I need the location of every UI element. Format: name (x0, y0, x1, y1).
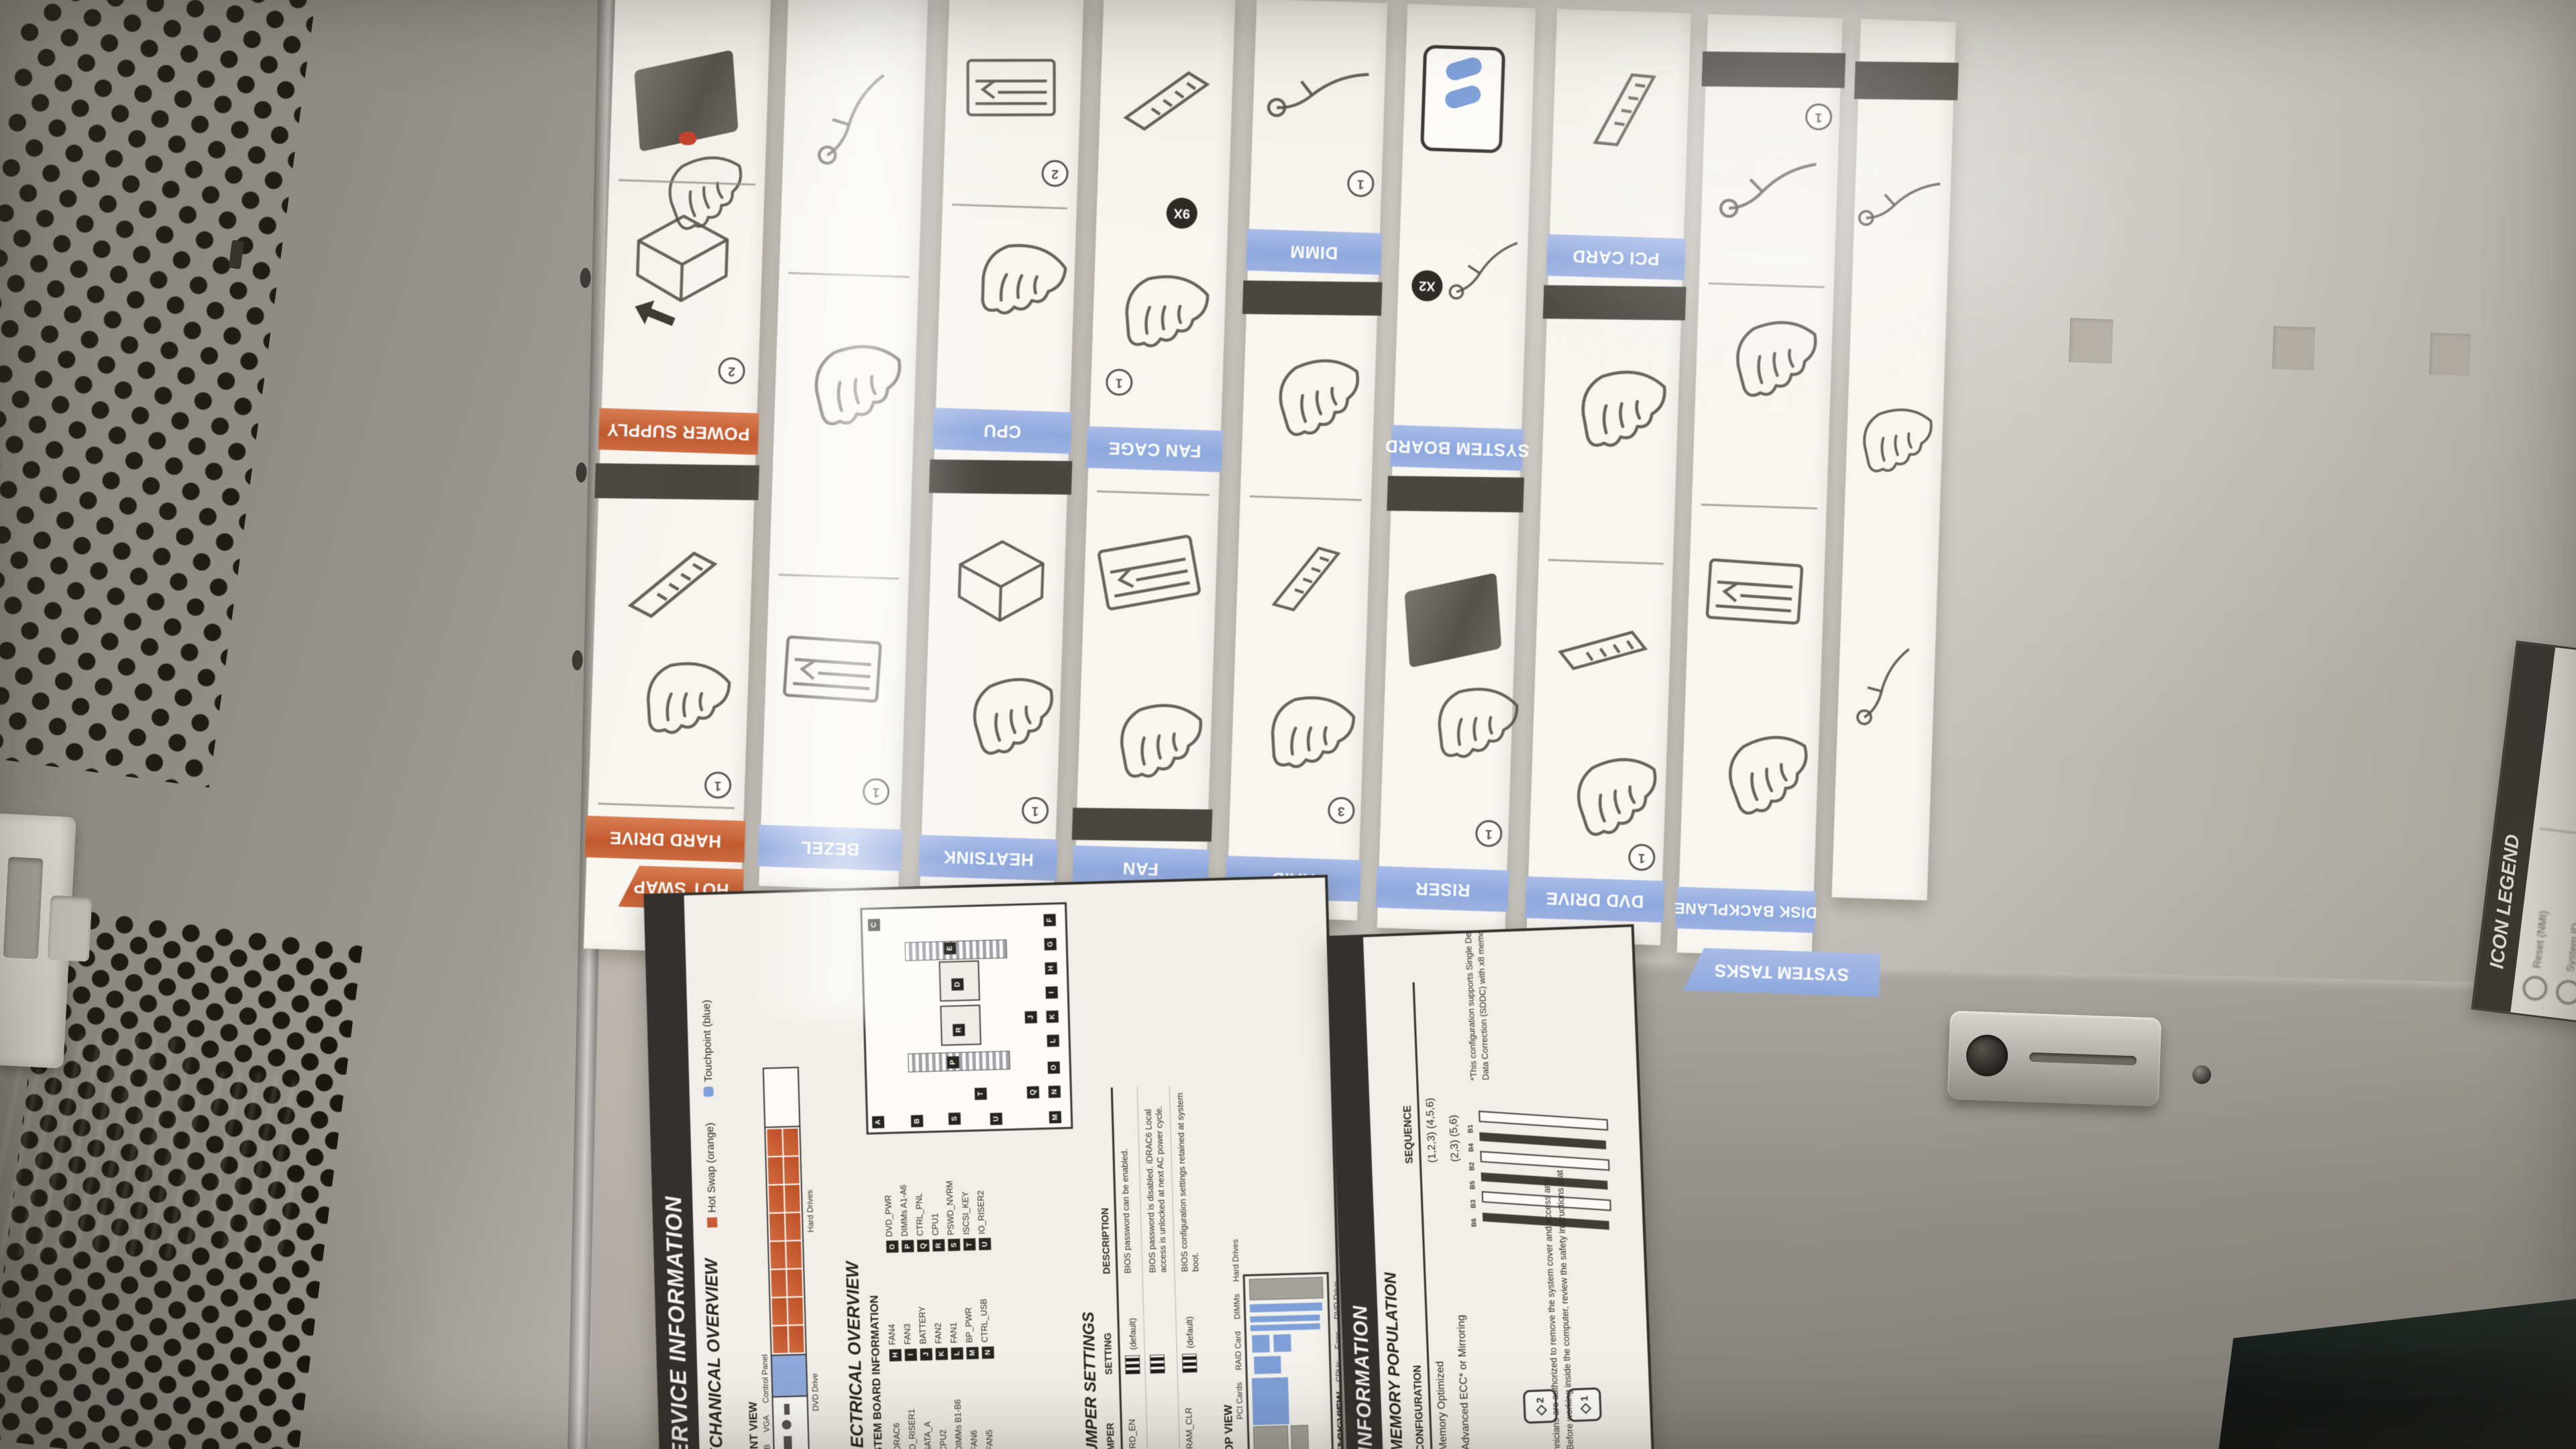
legend-key-chip: O (886, 1240, 898, 1252)
legend-key-chip: N (981, 1346, 994, 1358)
task-strip-right (1832, 19, 1956, 900)
task-strip-bezel: 1 BEZEL (759, 0, 928, 890)
jumper-setting-label: (default) (1128, 1318, 1138, 1350)
repeat-count: X2 (1419, 278, 1436, 294)
repeat-count-badge: 9X (1166, 197, 1197, 229)
electrical-overview-block: ELECTRICAL OVERVIEW SYSTEM BOARD INFORMA… (832, 894, 1084, 1449)
task-strip-fan: 9X 1 FAN CAGE FAN (1073, 0, 1235, 910)
repeat-count: 9X (1173, 205, 1190, 221)
orange-key-icon (707, 1217, 717, 1227)
step-number-circle: 3 (1328, 797, 1355, 824)
cpu-label-band: CPU (932, 408, 1072, 454)
drive-cell (786, 1213, 801, 1240)
board-letter: G (1044, 938, 1057, 950)
board-legend-item: DCPU2 (936, 1369, 953, 1449)
latch-screw-hole (1966, 1034, 2008, 1077)
board-letter: P (947, 1056, 959, 1068)
drive-cell (767, 1129, 782, 1157)
hand-illustration (627, 645, 739, 757)
legend-label: IO_RISER1 (907, 1409, 918, 1449)
power-supply-label-band: POWER SUPPLY (598, 408, 759, 455)
lever-illustration (1258, 29, 1384, 154)
jumper-description: BIOS password can be enabled. (1118, 1087, 1138, 1274)
board-legend-list: AiDRAC6 BIO_RISER1 CSATA_A DCPU2 EDIMMs … (882, 1151, 1000, 1449)
jumper-icon (1150, 1354, 1165, 1374)
jumper-setting-label: (default) (1184, 1316, 1195, 1348)
board-legend-item: KFAN2 (932, 1260, 948, 1360)
dimm-block (1250, 1315, 1320, 1323)
col-setting: SETTING (1102, 1274, 1116, 1375)
system-tasks-label: SYSTEM TASKS (1714, 959, 1849, 985)
board-letter: E (944, 942, 956, 954)
memory-diagram-zone: B6B3B5B2B4B1 ◇2 ◇1 *This config (1458, 935, 1639, 1449)
step-number-circle: 1 (1475, 820, 1503, 847)
legend-key-chip: R (932, 1239, 945, 1251)
front-view-block: FRONT VIEW USB VGA Control Panel (733, 901, 848, 1449)
jumper-setting: (default) (1179, 1271, 1204, 1373)
panel-rotated-content: SERVICE INFORMATION MECHANICAL OVERVIEW … (647, 877, 1341, 1449)
step-number-circle: 1 (1106, 368, 1133, 396)
wall-square-mark (2272, 326, 2315, 370)
system-board-label: SYSTEM BOARD (1385, 435, 1529, 461)
top-view-label: PCI Cards (1234, 1382, 1245, 1419)
drive-cell (769, 1185, 784, 1213)
metal-latch-bracket (1947, 1011, 2161, 1107)
cell-divider (1250, 495, 1362, 500)
blue-key-icon (704, 1087, 714, 1097)
jumper-settings-block: JUMPER SETTINGS JUMPER SETTING DESCRIPTI… (1068, 890, 1224, 1449)
drive-cell (789, 1326, 804, 1353)
power-supplies-block (1253, 1426, 1289, 1449)
tray-illustration (1089, 511, 1212, 629)
dimm-block (1250, 1324, 1320, 1332)
legend-label: IO_RISER2 (976, 1190, 987, 1234)
legend-label: iDRAC6 (892, 1423, 902, 1449)
board-legend-item: GFAN5 (983, 1368, 999, 1449)
board-legend-item: TISCSI_KEY (959, 1152, 975, 1251)
drive-cell (770, 1242, 786, 1269)
dimm-label-band: DIMM (1246, 229, 1382, 275)
legend-label: DIMMs B1-B6 (953, 1399, 964, 1449)
step-number: 1 (1485, 826, 1493, 841)
white-plastic-latch (0, 813, 76, 1069)
jumper-description: BIOS configuration settings retained at … (1174, 1085, 1201, 1273)
drive-cell (784, 1157, 799, 1184)
task-strip-system-board: X2 SYSTEM BOARD 1 RISER (1377, 4, 1536, 932)
release-tab-red (679, 131, 697, 146)
board-letter: B (911, 1115, 923, 1127)
bezel-label: BEZEL (800, 837, 860, 859)
board-letter: D (951, 978, 963, 990)
hard-drive-grid (765, 1127, 805, 1354)
board-letter: S (949, 1112, 961, 1124)
board-legend-item: FFAN6 (967, 1368, 983, 1449)
legend-key-chip: J (920, 1348, 932, 1360)
divider-wedge (1387, 476, 1524, 512)
memory-information-panel: INFORMATION MEMORY POPULATION CONFIGURAT… (1327, 924, 1661, 1449)
system-tasks-tab: SYSTEM TASKS (1683, 947, 1880, 997)
legend-label: ISCSI_KEY (961, 1191, 971, 1235)
raid-card-block (1254, 1356, 1281, 1374)
card-illustration (1244, 517, 1369, 638)
chassis-screw (2192, 1065, 2211, 1084)
hand-illustration (1421, 674, 1525, 778)
legend-label: SATA_A (923, 1421, 933, 1449)
drive-cell (783, 1128, 798, 1156)
lever-illustration (1713, 129, 1830, 246)
system-board-label-band: SYSTEM BOARD (1390, 425, 1523, 470)
col-jumper: JUMPER (1104, 1375, 1119, 1449)
card-illustration (1112, 48, 1223, 152)
legend-label: FAN5 (985, 1430, 995, 1449)
dvd-drive-label: DVD Drive (810, 1373, 821, 1411)
latch-metal-clip (48, 896, 93, 962)
hand-illustration (1260, 345, 1371, 455)
step-chip-number: 1 (1578, 1395, 1590, 1401)
drive-cell (788, 1297, 803, 1325)
step-number-circle: 1 (1022, 796, 1049, 824)
hand-illustration (954, 663, 1065, 774)
dimm-slot-labels: B6B3B5B2B4B1 (1467, 1124, 1479, 1227)
usb-label: USB (762, 1444, 772, 1449)
jumper-name: PWRD_EN (1126, 1374, 1143, 1449)
cell-divider (1701, 504, 1817, 509)
legend-key-chip: S (948, 1239, 960, 1251)
vga-port-icon (784, 1436, 792, 1449)
drive-cell (769, 1214, 785, 1241)
legend-key-chip: K (936, 1348, 948, 1360)
task-strip-pci-card: PCI CARD 1 DVD DRIVE (1526, 9, 1691, 945)
rail-illustration (608, 524, 739, 643)
step-number: 1 (1032, 803, 1039, 818)
step-chip-number: 2 (1534, 1397, 1546, 1403)
jumper-setting: (default) (1123, 1273, 1140, 1375)
step-number: 1 (872, 784, 879, 799)
hard-drives-block (1249, 1277, 1324, 1300)
hand-illustration (1556, 743, 1670, 857)
drive-cell (771, 1298, 787, 1326)
disk-backplane-label: DISK BACKPLANE (1674, 898, 1818, 921)
cell-divider (952, 203, 1067, 209)
riser-label-band: RISER (1376, 866, 1509, 912)
legend-key-chip: L (951, 1347, 963, 1359)
dimm-label: DIMM (1289, 241, 1338, 263)
card-illustration (1540, 588, 1668, 712)
legend-label: FAN4 (888, 1324, 898, 1346)
hand-illustration (1106, 260, 1216, 370)
lever-illustration (1831, 626, 1941, 743)
wall-square-mark (2429, 333, 2471, 376)
step-number: 1 (1815, 109, 1822, 124)
legend-key-chip: I (905, 1348, 917, 1360)
board-legend-item: BIO_RISER1 (906, 1370, 922, 1449)
legend-circle-icon (2522, 975, 2548, 1002)
board-legend-item: EDIMMs B1-B6 (952, 1368, 968, 1449)
board-letter: A (872, 1116, 884, 1128)
hand-illustration (1719, 308, 1826, 415)
legend-key-chip: U (979, 1238, 991, 1250)
latch-slot (2029, 1053, 2137, 1066)
legend-key-chip: H (890, 1349, 902, 1361)
legend-label: FAN2 (933, 1323, 943, 1344)
board-letter: O (1048, 1061, 1060, 1073)
cell-divider (1548, 559, 1664, 564)
bezel-label-band: BEZEL (757, 824, 902, 871)
pci-cards-block (1252, 1377, 1289, 1425)
hot-swap-key: Hot Swap (orange) (704, 1122, 718, 1228)
lever-illustration (1851, 147, 1953, 256)
board-letter: R (953, 1024, 965, 1036)
control-panel-label: Control Panel (760, 1354, 771, 1403)
tray-illustration (1701, 535, 1813, 641)
dimm-slot-label: B1 (1467, 1124, 1474, 1133)
fan-label: FAN (1122, 857, 1159, 879)
step-number: 3 (1338, 803, 1345, 818)
dvd-segment (772, 1354, 807, 1397)
board-legend-item: NCTRL_USB (978, 1260, 994, 1359)
col-description: DESCRIPTION (1096, 1087, 1114, 1274)
fans-block (1250, 1302, 1322, 1312)
board-legend-item: ODVD_PWR (882, 1154, 898, 1253)
legend-label: DIMMs A1-A6 (899, 1185, 910, 1236)
divider-wedge (1854, 62, 1959, 101)
hot-swap-key-label: Hot Swap (orange) (704, 1122, 718, 1213)
hand-illustration (1251, 680, 1363, 792)
board-letter: J (1025, 1011, 1037, 1023)
board-legend-item: HFAN4 (885, 1262, 902, 1361)
server-side-metal-panel (0, 0, 620, 1449)
top-view-label: Hard Drives (1230, 1239, 1241, 1282)
divider-wedge (594, 464, 759, 500)
system-board-diagram: ABCDEFGHIJKLMNOPQRSTU (860, 902, 1073, 1134)
task-strip-cpu: 2 CPU 1 HEATSINK (920, 0, 1084, 900)
legend-label: PSWD_NVRM (945, 1181, 956, 1236)
power-supply-label: POWER SUPPLY (607, 419, 751, 444)
legend-label: CTRL_USB (979, 1299, 990, 1343)
fan-cage-label: FAN CAGE (1108, 437, 1201, 462)
stamped-text-marks (0, 1034, 202, 1259)
dvd-drive-label: DVD DRIVE (1546, 888, 1644, 912)
divider-wedge (1702, 52, 1846, 89)
legend-label: CPU2 (938, 1430, 949, 1449)
hand-illustration (1106, 694, 1206, 794)
legend-key-chip: Q (917, 1240, 929, 1252)
lever-illustration (792, 53, 918, 180)
board-legend-item: AiDRAC6 (890, 1371, 906, 1449)
stamped-text-marks-2 (211, 1072, 295, 1261)
mechanical-overview-heading: MECHANICAL OVERVIEW (701, 1258, 728, 1449)
legend-label: DVD_PWR (883, 1195, 894, 1237)
step-number: 2 (1051, 166, 1059, 180)
divider-wedge (929, 460, 1073, 495)
top-view-heading: TOP VIEW (1222, 1405, 1236, 1449)
board-legend-item: CSATA_A (921, 1369, 937, 1449)
step-number-circle: 1 (862, 778, 890, 806)
top-view-label: DIMMs (1232, 1293, 1242, 1319)
legend-key-chip: M (966, 1346, 978, 1358)
panel-content: MECHANICAL OVERVIEW Hot Swap (orange) To… (684, 877, 1341, 1449)
jumper-name: NVRAM_CLR (1182, 1372, 1206, 1449)
hand-illustration (1566, 360, 1670, 464)
service-information-title: SERVICE INFORMATION (661, 1195, 694, 1449)
hard-drive-label-band: HARD DRIVE (584, 816, 745, 863)
dimm-latch-pictogram (1420, 45, 1505, 154)
board-letter: N (1049, 1085, 1061, 1097)
board-letter: C (868, 919, 880, 931)
dimm-slot-label: B6 (1470, 1218, 1478, 1227)
legend-label: CPU1 (930, 1213, 941, 1236)
step-number-circle: 2 (718, 357, 745, 384)
cpu-label: CPU (983, 420, 1021, 442)
service-information-panel: SERVICE INFORMATION MECHANICAL OVERVIEW … (643, 875, 1348, 1449)
dimm-slot-label: B5 (1469, 1181, 1477, 1189)
jumper-icon (1125, 1355, 1140, 1375)
jumper-icon (1182, 1354, 1197, 1373)
cpu-block (1252, 1335, 1270, 1353)
cell-divider (598, 802, 735, 808)
cell-divider (1709, 282, 1825, 288)
step-number: 1 (1357, 176, 1364, 191)
dimm-slot-label: B3 (1470, 1199, 1477, 1208)
drive-cell (767, 1157, 783, 1185)
hard-drives-label: Hard Drives (805, 1189, 816, 1232)
step-number: 1 (1638, 850, 1646, 865)
board-legend-item: JBATTERY (916, 1261, 932, 1360)
board-box-illustration (1404, 572, 1501, 667)
legend-key-chip: T (963, 1238, 975, 1250)
board-letter: I (1046, 986, 1058, 998)
disk-backplane-label-band: DISK BACKPLANE (1676, 887, 1816, 933)
legend-label: CTRL_PNL (914, 1193, 925, 1236)
wall-square-mark (2069, 318, 2113, 364)
drive-cell (773, 1326, 788, 1354)
board-letter: Q (1027, 1086, 1039, 1098)
diamond-icon: ◇ (1532, 1405, 1549, 1415)
legend-label: FAN3 (902, 1324, 912, 1345)
board-legend-item: MBP_PWR (963, 1260, 979, 1359)
drive-cell (771, 1270, 786, 1297)
pci-card-label: PCI CARD (1572, 246, 1660, 269)
hand-illustration (1849, 394, 1939, 492)
board-legend-item: SPSWD_NVRM (944, 1152, 960, 1252)
panel-rotated-content: INFORMATION MEMORY POPULATION CONFIGURAT… (1330, 927, 1653, 1449)
legend-item-label: Reset (NMI) (2532, 910, 2551, 969)
hand-illustration (1707, 719, 1823, 836)
drive-cell (786, 1241, 802, 1269)
board-letter: M (1049, 1111, 1061, 1123)
panel-led-icon (784, 1404, 790, 1415)
board-legend-item: UIO_RISER2 (975, 1151, 991, 1250)
power-button-icon (782, 1420, 791, 1430)
top-view-block: TOP VIEW PCI CardsRAID CardDIMMsHard Dri… (1207, 887, 1336, 1449)
board-letter: F (1044, 914, 1056, 926)
board-legend-item: LFAN1 (947, 1260, 963, 1360)
board-legend-item: QCTRL_PNL (913, 1153, 929, 1252)
cell-divider (1097, 490, 1210, 496)
tray-illustration (777, 612, 892, 720)
touchpoint-key-label: Touchpoint (blue) (701, 1000, 714, 1082)
drive-cell (785, 1185, 800, 1212)
board-letter: L (1047, 1034, 1059, 1046)
board-letter: H (1045, 962, 1057, 974)
cube-illustration (947, 533, 1051, 630)
latch-pill-icon (1444, 56, 1484, 83)
latch-pill-icon (1443, 84, 1483, 111)
board-legend-item: IFAN3 (901, 1262, 917, 1361)
step-number-circle: 1 (1347, 170, 1375, 197)
repeat-count-badge: X2 (1411, 270, 1444, 301)
board-letter: K (1046, 1010, 1059, 1022)
board-legend-item: PDIMMs A1-A6 (898, 1153, 914, 1252)
dimm-slot-label: B4 (1468, 1143, 1475, 1152)
riser-label: RISER (1415, 877, 1470, 900)
latch-slot (3, 857, 44, 959)
dvd-drive-label-band: DVD DRIVE (1525, 876, 1664, 922)
vga-label: VGA (761, 1415, 771, 1432)
jumper-setting (1148, 1273, 1173, 1374)
jumper-name (1150, 1373, 1175, 1449)
dimm-slot-label: B2 (1468, 1162, 1476, 1171)
divider-wedge (1072, 808, 1213, 842)
drive-cell (787, 1269, 802, 1297)
legend-circle-icon (2555, 979, 2576, 1006)
step-number: 1 (1116, 375, 1123, 390)
blank-segment (764, 1068, 799, 1128)
front-ports-segment (773, 1397, 808, 1449)
card-illustration (1554, 39, 1696, 178)
legend-label: BATTERY (918, 1306, 928, 1344)
legend-label: BP_PWR (964, 1307, 974, 1343)
heatsink-label-band: HEATSINK (918, 835, 1058, 881)
panel-content: MEMORY POPULATION CONFIGURATION SEQUENCE… (1363, 927, 1653, 1449)
legend-label: FAN6 (969, 1430, 979, 1449)
step-number: 1 (714, 777, 722, 792)
step-number-circle: 1 (704, 771, 732, 799)
diamond-icon: ◇ (1576, 1403, 1593, 1413)
step-number-circle: 1 (1805, 103, 1832, 131)
memory-sequence: (1,2,3) (4,5,6) (1420, 981, 1439, 1163)
task-strip-power-supply: 2 POWER SUPPLY 1 HARD DRIVE HOT SWAP (584, 0, 771, 954)
board-letter: T (975, 1087, 987, 1099)
board-letter: U (990, 1113, 1002, 1125)
divider-wedge (1543, 285, 1686, 321)
step-number-circle: 1 (1628, 843, 1656, 871)
memory-sequence: (2,3) (5,6) (1443, 981, 1462, 1162)
legend-label: FAN1 (949, 1322, 959, 1344)
fan-cage-label-band: FAN CAGE (1086, 426, 1223, 472)
legend-key-chip: P (902, 1240, 914, 1252)
step-number-circle: 2 (1041, 160, 1069, 187)
heatsink-label: HEATSINK (943, 846, 1034, 869)
jumper-description: BIOS password is disabled. iDRAC6 Local … (1142, 1086, 1169, 1273)
touchpoint-key: Touchpoint (blue) (701, 1000, 715, 1097)
top-view-diagram (1243, 1272, 1334, 1449)
cpu-block (1273, 1334, 1291, 1352)
divider-wedge (1242, 280, 1383, 316)
dvd-drive-block (1291, 1425, 1309, 1449)
legend-item-label: System ID (2565, 922, 2576, 973)
board-legend-item: RCPU1 (928, 1152, 945, 1252)
pci-card-label-band: PCI CARD (1546, 234, 1686, 280)
top-view-label: RAID Card (1233, 1331, 1244, 1370)
task-strip-disk-backplane: 1 DISK BACKPLANE (1677, 14, 1843, 957)
tray-illustration (963, 38, 1063, 131)
top-view-upper-labels: PCI CardsRAID CardDIMMsHard Drives (1221, 890, 1245, 1419)
step-number: 2 (728, 364, 735, 378)
hard-drive-label: HARD DRIVE (609, 827, 722, 852)
jumper-table: JUMPER SETTING DESCRIPTION PWRD_EN (defa… (1096, 1085, 1212, 1449)
information-title: INFORMATION (1349, 1305, 1377, 1449)
